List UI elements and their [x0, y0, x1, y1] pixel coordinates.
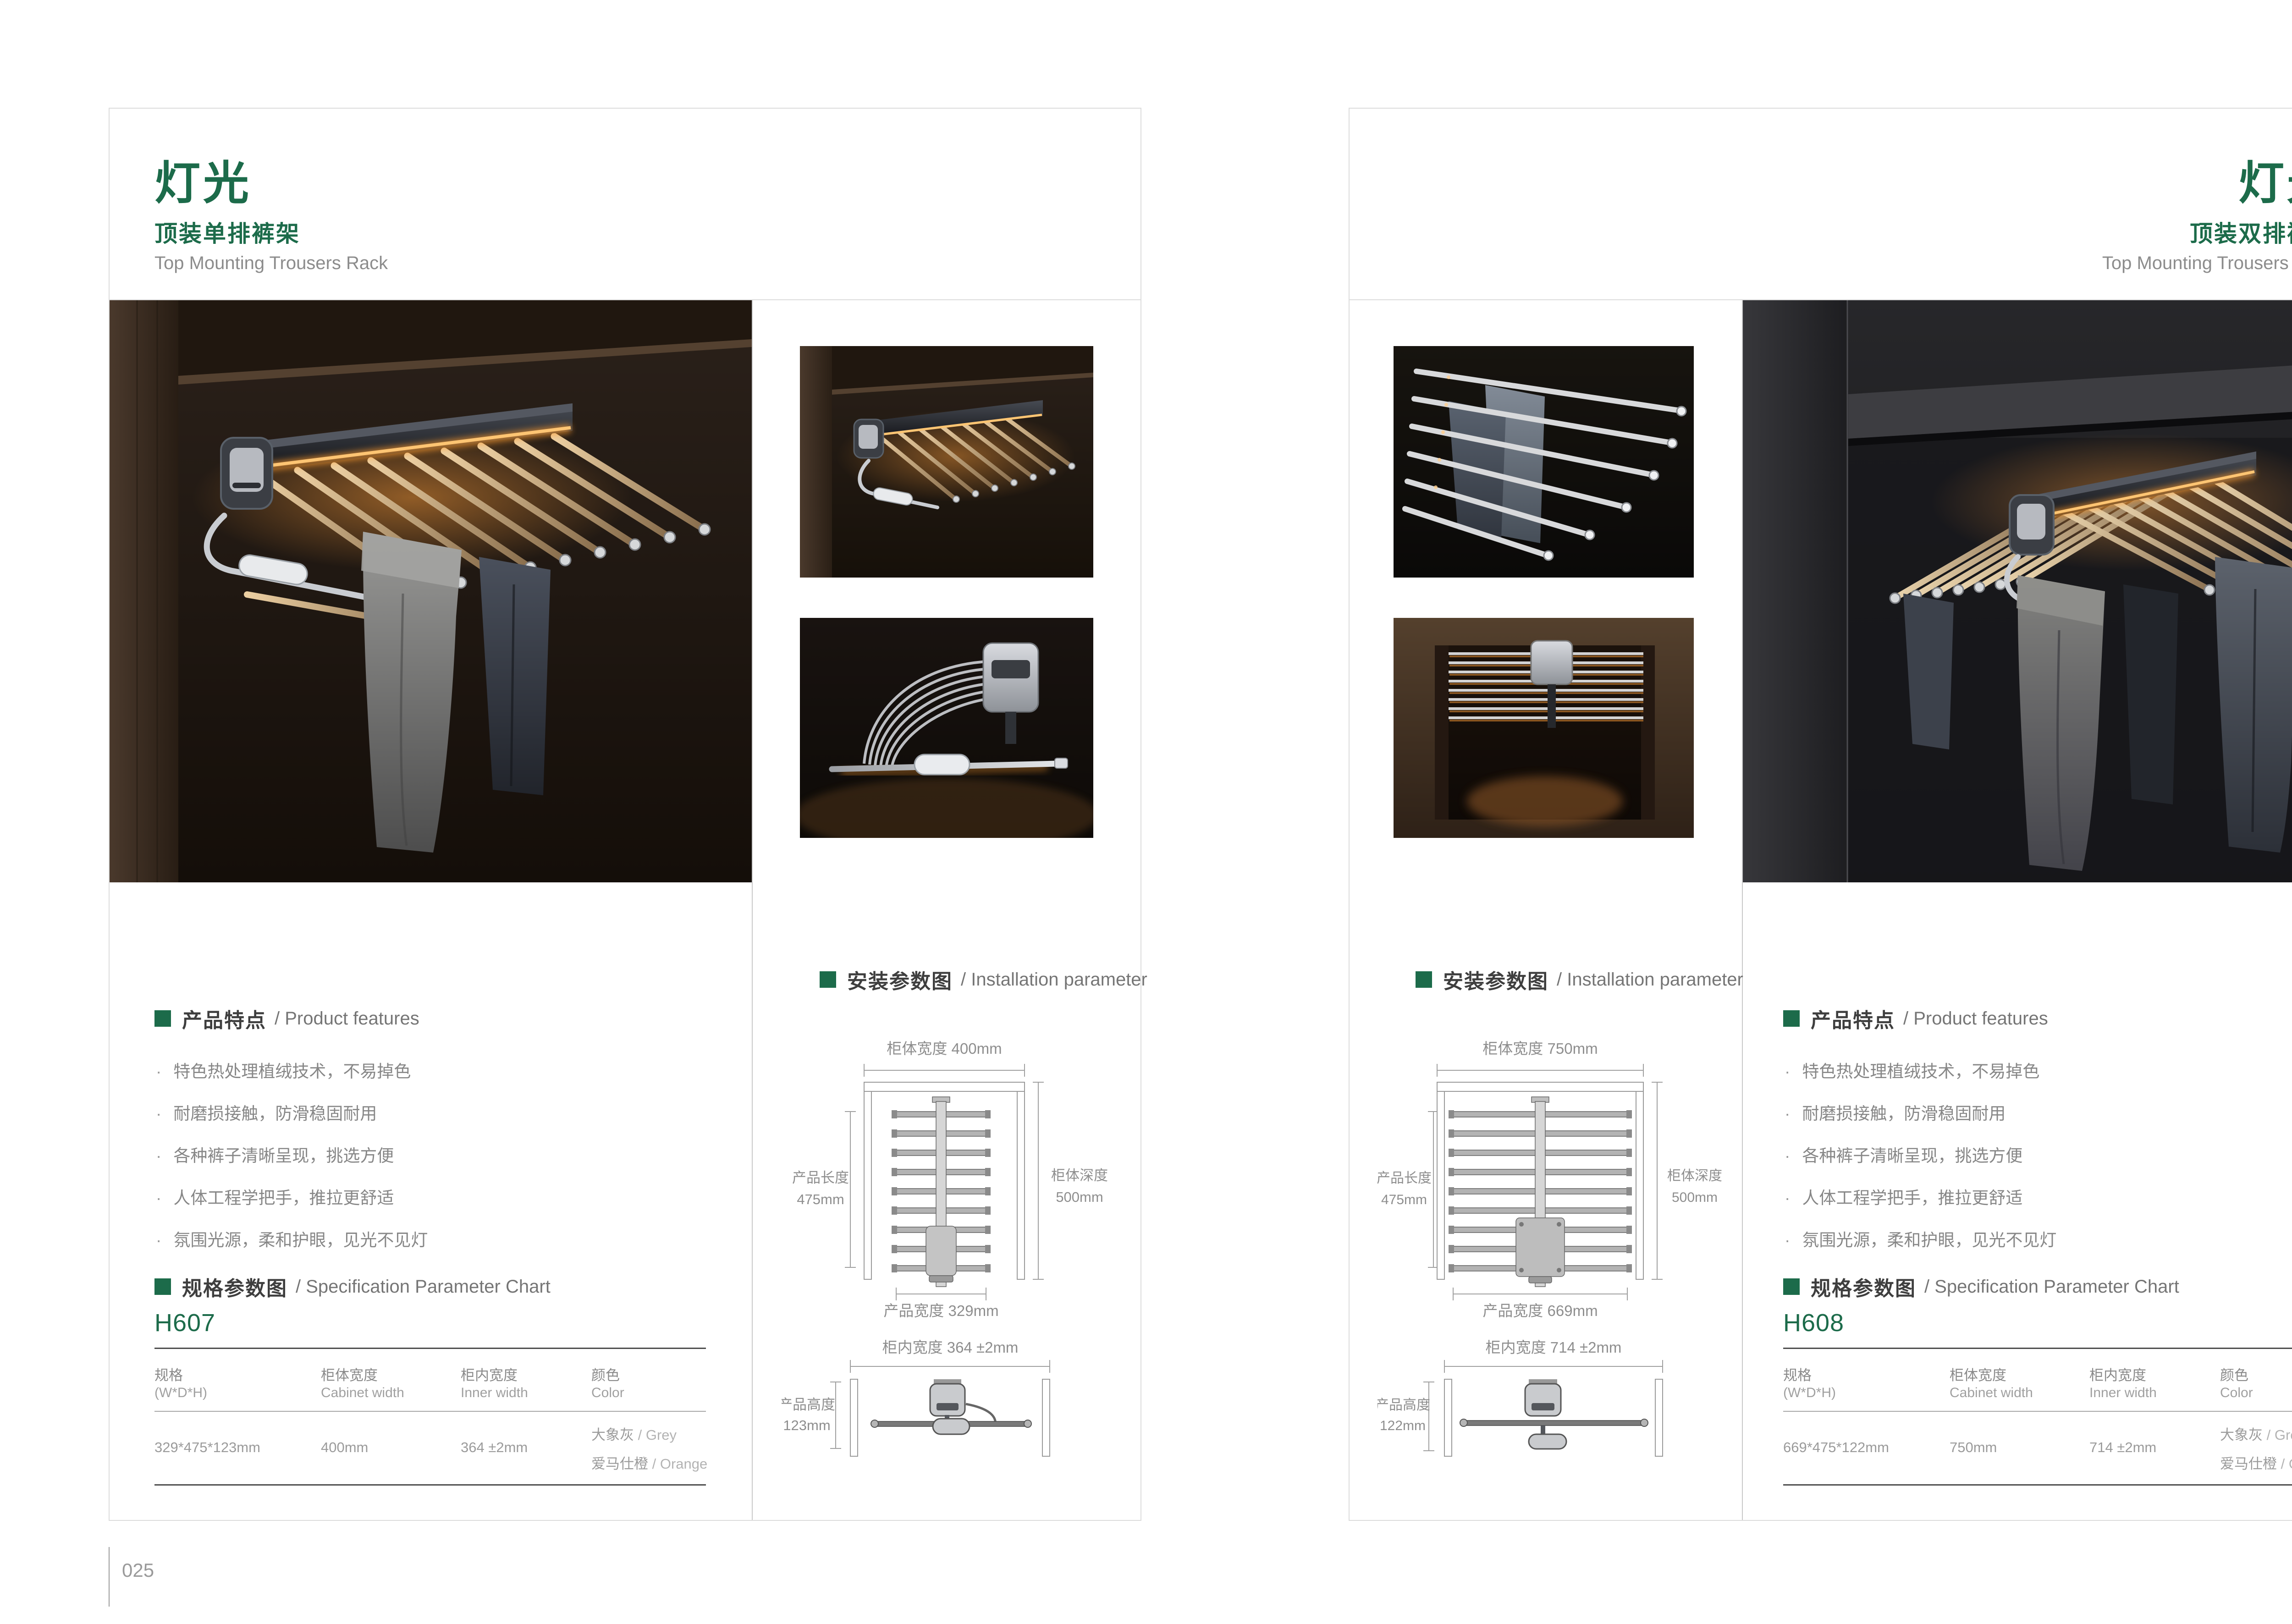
page-title-left: 灯光 [154, 146, 252, 212]
page-subtitle-en-left: Top Mounting Trousers Rack [154, 253, 388, 274]
photo-main-double-rack [1743, 300, 2292, 882]
feature-item: ·耐磨损接触，防滑稳固耐用 [1785, 1100, 2005, 1124]
green-square-icon [1783, 1278, 1800, 1295]
bullet: · [156, 1146, 161, 1165]
col-header-en: (W*D*H) [1783, 1385, 1836, 1401]
cell-size: 669*475*122mm [1783, 1439, 1889, 1456]
green-square-icon [154, 1010, 171, 1027]
page-subtitle-left: 顶装单排裤架 [154, 215, 300, 248]
svg-text:柜体深度: 柜体深度 [1051, 1167, 1108, 1184]
section-installation-right: 安装参数图 / Installation parameter [1416, 965, 1743, 994]
svg-text:柜内宽度 364 ±2mm: 柜内宽度 364 ±2mm [882, 1339, 1019, 1356]
cell-cabinet-width: 400mm [321, 1439, 368, 1456]
page-subtitle-right: 顶装双排裤架 [2190, 215, 2292, 248]
bullet: · [156, 1062, 161, 1081]
diagram-front-view-single: 柜内宽度 364 ±2mm 产品高度 123mm [782, 1336, 1139, 1464]
col-header-en: Cabinet width [321, 1385, 404, 1401]
section-product-features-left: 产品特点 / Product features [154, 1004, 419, 1033]
section-product-features-right: 产品特点 / Product features [1783, 1004, 2048, 1033]
photo-small-rack-empty [800, 346, 1093, 578]
svg-text:123mm: 123mm [783, 1417, 830, 1433]
col-header: 柜内宽度 [2089, 1364, 2146, 1384]
feature-item: ·人体工程学把手，推拉更舒适 [1785, 1184, 2022, 1209]
col-header: 颜色 [591, 1364, 620, 1384]
page-title-right: 灯光 [2238, 146, 2292, 212]
table-rule [154, 1484, 706, 1486]
svg-text:柜体宽度 400mm: 柜体宽度 400mm [887, 1040, 1002, 1057]
bullet: · [1785, 1104, 1790, 1123]
feature-item: ·氛围光源，柔和护眼，见光不见灯 [1785, 1226, 2056, 1251]
bullet: · [1785, 1146, 1790, 1165]
diagram-top-view-double: 柜体宽度 750mm 产品长度 475mm 柜体深度 500mm 产品宽度 66… [1377, 1034, 1735, 1322]
svg-text:柜体宽度 750mm: 柜体宽度 750mm [1482, 1040, 1598, 1057]
svg-text:柜内宽度 714 ±2mm: 柜内宽度 714 ±2mm [1486, 1339, 1622, 1356]
svg-text:产品宽度 669mm: 产品宽度 669mm [1482, 1302, 1598, 1319]
table-rule [1783, 1348, 2292, 1349]
cell-color-1: 大象灰 / Grey [591, 1423, 677, 1444]
col-header-en: Color [591, 1385, 624, 1401]
col-header-en: Color [2220, 1385, 2253, 1401]
green-square-icon [820, 971, 836, 988]
svg-text:产品高度: 产品高度 [782, 1397, 835, 1413]
photo-small-topdown-cabinet [1394, 618, 1694, 838]
col-header: 规格 [1783, 1364, 1812, 1384]
svg-text:122mm: 122mm [1380, 1418, 1426, 1433]
bullet: · [156, 1231, 161, 1250]
cell-color-2: 爱马仕橙 / Orange [591, 1452, 707, 1473]
diagram-top-view-single: 柜体宽度 400mm 产品长度 475mm 柜体深度 500mm 产品宽度 32… [782, 1034, 1139, 1322]
column-divider-left [752, 300, 753, 1520]
cell-inner-width: 714 ±2mm [2089, 1439, 2156, 1456]
model-number-right: H608 [1783, 1309, 1844, 1337]
col-header-en: Inner width [461, 1385, 528, 1401]
svg-text:柜体深度: 柜体深度 [1667, 1168, 1722, 1184]
col-header: 规格 [154, 1364, 183, 1384]
photo-small-bars-trousers [1394, 346, 1694, 578]
table-rule [154, 1348, 706, 1349]
page-number-left: 025 [122, 1559, 154, 1581]
svg-text:产品宽度 329mm: 产品宽度 329mm [883, 1302, 998, 1319]
page-subtitle-en-right: Top Mounting Trousers Rack [2102, 253, 2292, 274]
col-header-en: (W*D*H) [154, 1385, 207, 1401]
bullet: · [1785, 1231, 1790, 1250]
cell-color-1: 大象灰 / Grey [2220, 1423, 2292, 1444]
feature-item: ·各种裤子清晰呈现，挑选方便 [156, 1142, 394, 1167]
col-header-en: Cabinet width [1950, 1385, 2033, 1401]
footer-rule [109, 1547, 110, 1607]
bullet: · [1785, 1062, 1790, 1081]
bullet: · [156, 1189, 161, 1207]
table-rule [1783, 1411, 2292, 1412]
green-square-icon [154, 1278, 171, 1295]
table-rule [154, 1411, 706, 1412]
col-header: 柜内宽度 [461, 1364, 518, 1384]
bullet: · [1785, 1189, 1790, 1207]
feature-item: ·耐磨损接触，防滑稳固耐用 [156, 1100, 377, 1124]
cell-size: 329*475*123mm [154, 1439, 260, 1456]
svg-text:500mm: 500mm [1056, 1189, 1103, 1205]
green-square-icon [1783, 1010, 1800, 1027]
feature-item: ·特色热处理植绒技术，不易掉色 [156, 1057, 411, 1082]
svg-text:产品高度: 产品高度 [1377, 1398, 1430, 1413]
feature-item: ·氛围光源，柔和护眼，见光不见灯 [156, 1226, 428, 1251]
col-header-en: Inner width [2089, 1385, 2157, 1401]
bullet: · [156, 1104, 161, 1123]
section-spec-chart-left: 规格参数图 / Specification Parameter Chart [154, 1272, 551, 1301]
col-header: 柜体宽度 [1950, 1364, 2006, 1384]
cell-cabinet-width: 750mm [1950, 1439, 1997, 1456]
svg-text:500mm: 500mm [1672, 1190, 1718, 1205]
col-header: 柜体宽度 [321, 1364, 378, 1384]
feature-item: ·各种裤子清晰呈现，挑选方便 [1785, 1142, 2022, 1167]
green-square-icon [1416, 971, 1432, 988]
cell-color-2: 爱马仕橙 / Orange [2220, 1452, 2292, 1473]
col-header: 颜色 [2220, 1364, 2248, 1384]
photo-main-single-rack [110, 300, 752, 882]
photo-small-hanger-mechanism [800, 618, 1093, 838]
table-rule [1783, 1484, 2292, 1486]
diagram-front-view-double: 柜内宽度 714 ±2mm 产品高度 122mm [1377, 1336, 1735, 1464]
page-number-right: 026 [2283, 1559, 2292, 1581]
svg-text:475mm: 475mm [797, 1191, 844, 1207]
model-number-left: H607 [154, 1309, 215, 1337]
cell-inner-width: 364 ±2mm [461, 1439, 528, 1456]
svg-text:产品长度: 产品长度 [792, 1170, 849, 1186]
feature-item: ·特色热处理植绒技术，不易掉色 [1785, 1057, 2039, 1082]
svg-text:475mm: 475mm [1381, 1192, 1427, 1207]
catalog-spread: 灯光 顶装单排裤架 Top Mounting Trousers Rack [0, 0, 2292, 1624]
svg-text:产品长度: 产品长度 [1377, 1171, 1432, 1186]
section-spec-chart-right: 规格参数图 / Specification Parameter Chart [1783, 1272, 2179, 1301]
feature-item: ·人体工程学把手，推拉更舒适 [156, 1184, 394, 1209]
section-installation-left: 安装参数图 / Installation parameter [820, 965, 1147, 994]
